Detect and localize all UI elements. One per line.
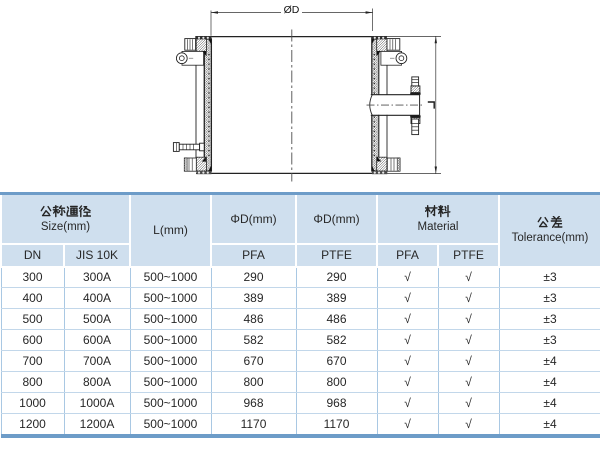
- svg-text:ØD: ØD: [284, 4, 300, 16]
